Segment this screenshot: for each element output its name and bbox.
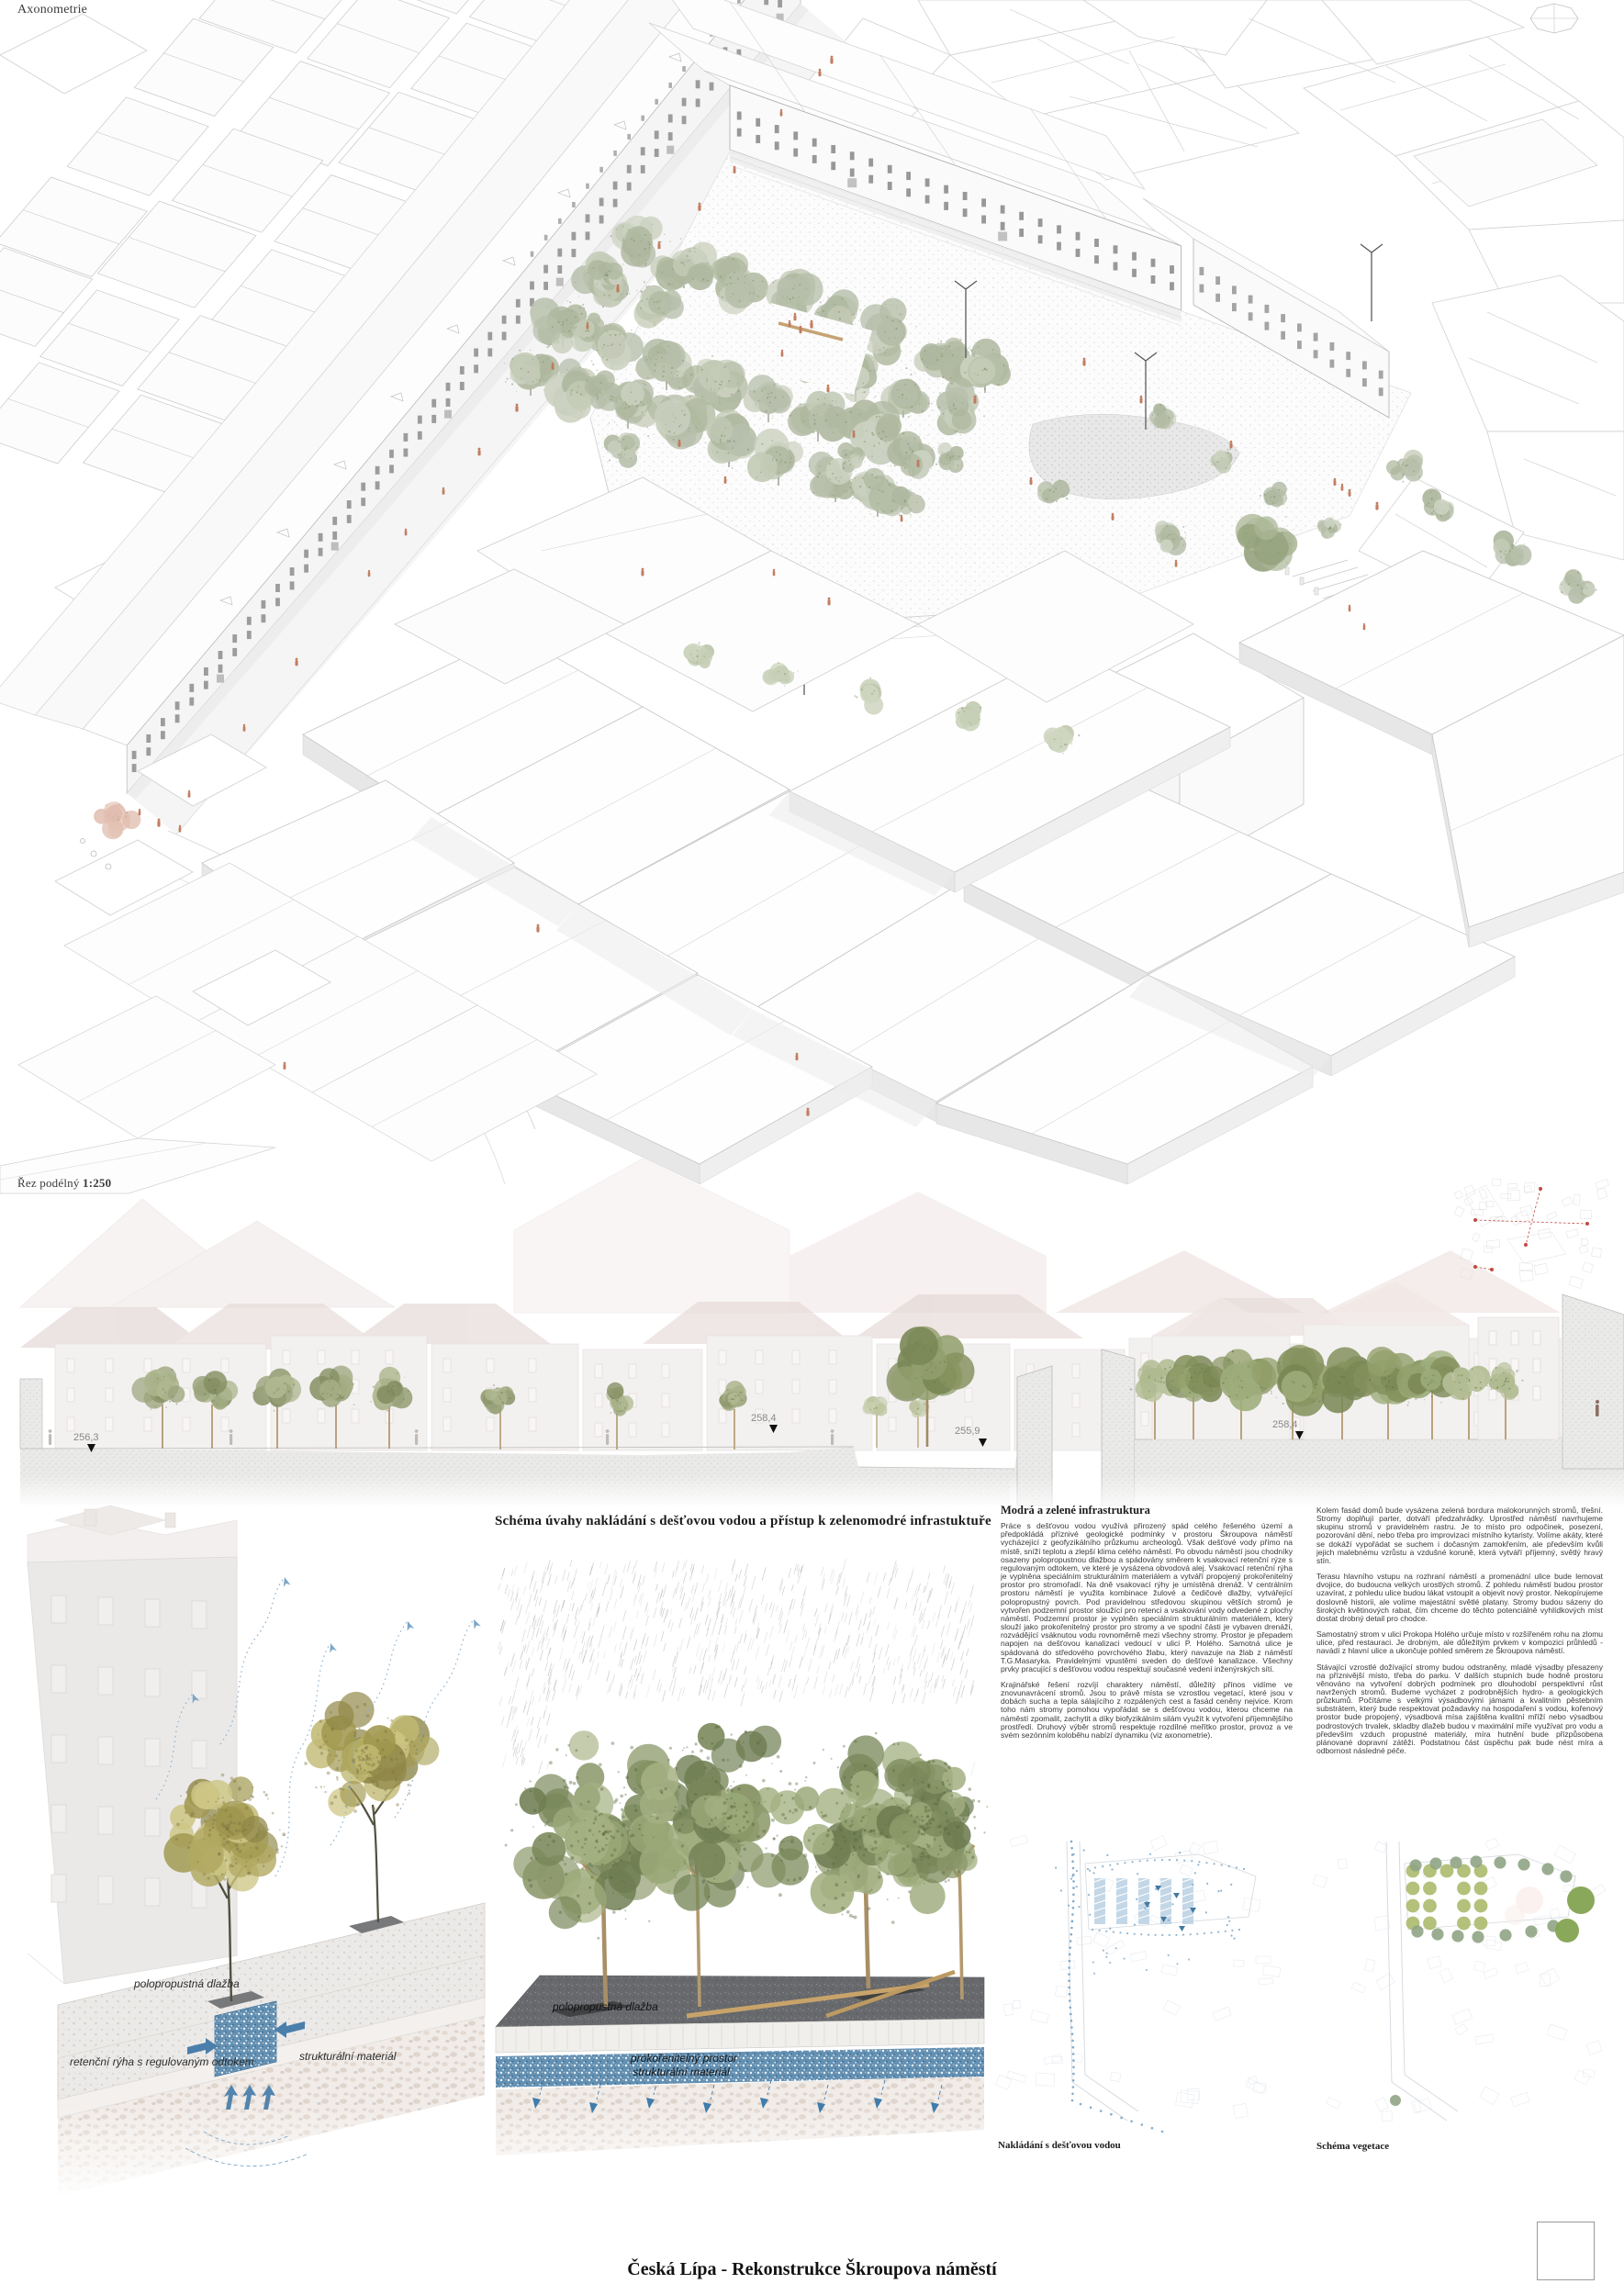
svg-text:strukturální materiál: strukturální materiál (299, 2050, 397, 2063)
svg-text:strukturální materiál: strukturální materiál (633, 2065, 730, 2078)
svg-text:258,4: 258,4 (751, 1413, 777, 1424)
svg-text:258,4: 258,4 (1272, 1419, 1298, 1430)
svg-text:prokořenitelný prostor: prokořenitelný prostor (630, 2052, 738, 2065)
svg-text:retenční rýha s regulovaným od: retenční rýha s regulovaným odtokem (70, 2055, 254, 2068)
svg-text:polopropustná dlažba: polopropustná dlažba (133, 1977, 240, 1990)
svg-text:256,3: 256,3 (73, 1432, 99, 1443)
svg-text:polopropustná dlažba: polopropustná dlažba (552, 2000, 658, 2013)
svg-text:255,9: 255,9 (955, 1426, 980, 1437)
